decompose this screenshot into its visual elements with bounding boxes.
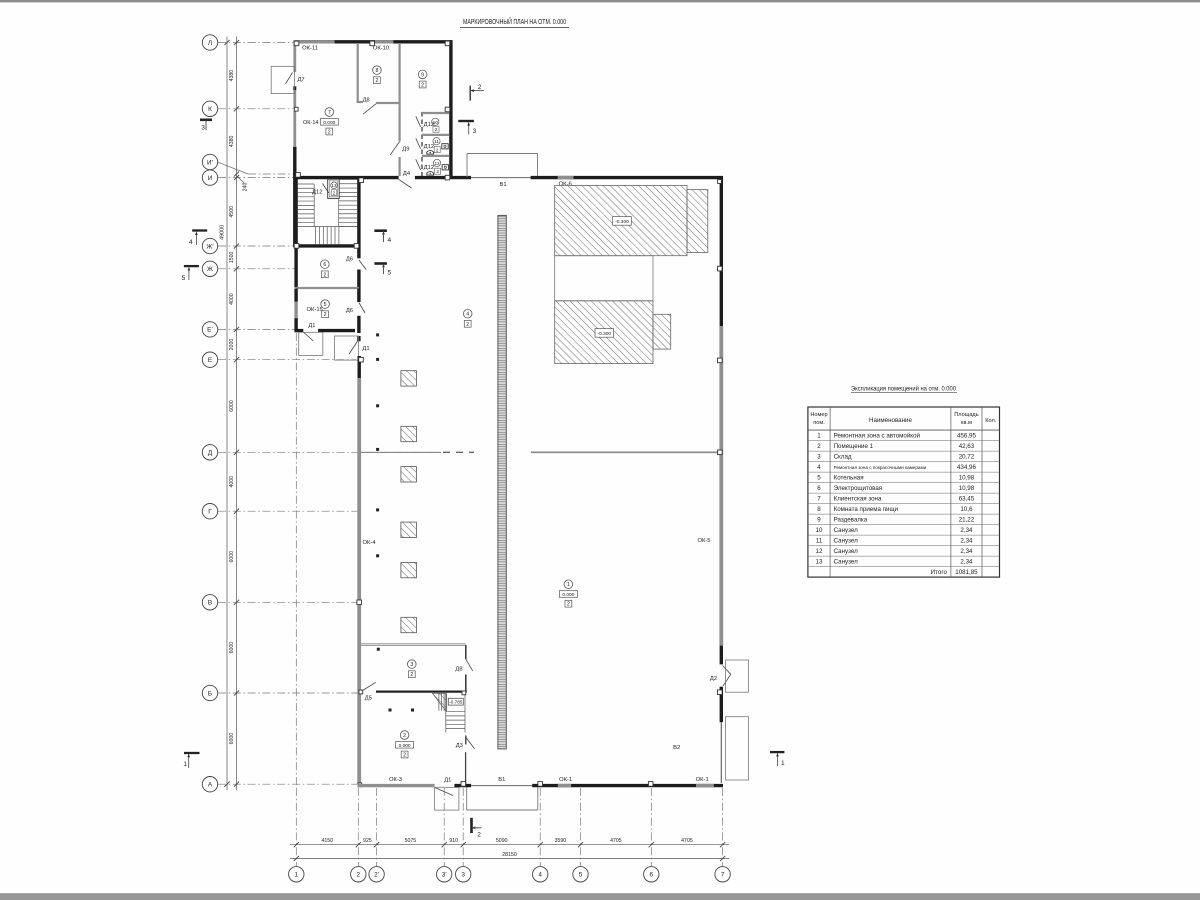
- svg-text:2: 2: [436, 147, 439, 152]
- svg-text:2: 2: [567, 602, 570, 608]
- svg-text:ОК-10: ОК-10: [373, 46, 389, 52]
- svg-text:4000: 4000: [229, 476, 235, 488]
- svg-text:7: 7: [817, 496, 821, 503]
- svg-text:21,22: 21,22: [959, 517, 975, 524]
- svg-text:4: 4: [466, 312, 469, 318]
- svg-text:2: 2: [357, 872, 361, 879]
- svg-text:5075: 5075: [405, 838, 417, 844]
- svg-text:6: 6: [817, 485, 821, 492]
- svg-text:4705: 4705: [610, 838, 622, 844]
- svg-text:-0.300: -0.300: [615, 219, 629, 225]
- svg-text:-0.785: -0.785: [449, 700, 462, 705]
- svg-text:0.000: 0.000: [323, 120, 335, 126]
- svg-text:2: 2: [328, 130, 331, 136]
- svg-text:В1: В1: [499, 182, 506, 188]
- svg-text:6000: 6000: [229, 642, 235, 654]
- svg-text:Д3: Д3: [456, 743, 463, 749]
- svg-text:42,63: 42,63: [959, 443, 975, 450]
- svg-text:49000: 49000: [220, 225, 226, 240]
- svg-text:7: 7: [721, 872, 725, 879]
- svg-text:ОК-1: ОК-1: [559, 777, 572, 783]
- svg-text:3: 3: [461, 872, 465, 879]
- svg-text:3: 3: [410, 662, 413, 668]
- svg-text:И: И: [208, 175, 213, 182]
- svg-text:2: 2: [410, 672, 413, 678]
- svg-text:2,34: 2,34: [960, 538, 973, 545]
- svg-text:13: 13: [816, 559, 823, 566]
- svg-text:кв.м: кв.м: [961, 420, 972, 426]
- svg-text:2,34: 2,34: [960, 548, 973, 555]
- svg-text:925: 925: [363, 838, 372, 844]
- svg-text:Д12: Д12: [312, 190, 323, 196]
- svg-text:2: 2: [435, 127, 438, 132]
- svg-text:9: 9: [817, 517, 821, 524]
- svg-text:3: 3: [817, 454, 821, 461]
- svg-text:4000: 4000: [229, 293, 235, 305]
- svg-text:10: 10: [433, 120, 439, 125]
- svg-text:Электрощитовая: Электрощитовая: [834, 485, 883, 492]
- svg-text:4: 4: [817, 464, 821, 471]
- svg-text:2’: 2’: [374, 872, 380, 879]
- svg-text:Наименование: Наименование: [869, 417, 912, 424]
- svg-text:Д8: Д8: [455, 667, 462, 673]
- svg-text:9: 9: [421, 72, 424, 78]
- svg-text:910: 910: [449, 838, 458, 844]
- svg-text:5: 5: [324, 302, 327, 308]
- svg-text:2: 2: [817, 443, 821, 450]
- svg-text:3’: 3’: [442, 872, 448, 879]
- svg-text:Котельная: Котельная: [834, 475, 864, 482]
- svg-text:МАРКИРОВОЧНЫЙ ПЛАН НА ОТМ. 0.0: МАРКИРОВОЧНЫЙ ПЛАН НА ОТМ. 0.000: [463, 17, 566, 26]
- svg-text:28150: 28150: [502, 852, 517, 858]
- svg-text:Клиентская зона: Клиентская зона: [834, 496, 882, 503]
- svg-text:6000: 6000: [229, 400, 235, 412]
- svg-text:ОК-15: ОК-15: [307, 307, 323, 313]
- svg-text:10,6: 10,6: [960, 506, 973, 513]
- svg-text:2,34: 2,34: [960, 527, 973, 534]
- svg-text:10: 10: [816, 527, 823, 534]
- svg-text:2000: 2000: [229, 339, 235, 351]
- svg-text:8: 8: [817, 506, 821, 513]
- svg-text:Д12: Д12: [424, 144, 435, 150]
- svg-text:Д6: Д6: [346, 308, 353, 314]
- svg-text:В: В: [208, 600, 212, 607]
- svg-text:Д4: Д4: [403, 171, 411, 177]
- svg-text:2: 2: [323, 272, 326, 278]
- svg-text:3: 3: [201, 125, 205, 132]
- svg-text:4500: 4500: [229, 206, 235, 218]
- svg-text:Ж’: Ж’: [206, 243, 214, 250]
- svg-text:2: 2: [478, 84, 482, 91]
- svg-text:2: 2: [324, 312, 327, 318]
- svg-text:Г: Г: [208, 509, 212, 516]
- svg-text:ОК-14: ОК-14: [303, 120, 318, 126]
- svg-text:1: 1: [567, 582, 570, 588]
- svg-text:5: 5: [182, 275, 186, 282]
- svg-text:11: 11: [816, 538, 823, 545]
- svg-text:Итого: Итого: [931, 569, 948, 576]
- svg-text:4705: 4705: [681, 838, 693, 844]
- svg-text:3: 3: [473, 128, 477, 135]
- svg-text:А: А: [208, 782, 213, 789]
- svg-text:1500: 1500: [229, 252, 235, 264]
- svg-text:И’: И’: [207, 159, 214, 166]
- svg-text:Д1: Д1: [362, 346, 369, 352]
- svg-text:4380: 4380: [229, 136, 235, 148]
- svg-text:12: 12: [816, 548, 823, 555]
- svg-text:ОК-3: ОК-3: [389, 777, 402, 783]
- svg-text:5: 5: [817, 475, 821, 482]
- svg-text:Д6: Д6: [346, 257, 353, 263]
- svg-text:6: 6: [650, 872, 654, 879]
- svg-text:Б: Б: [208, 690, 212, 697]
- svg-text:2: 2: [376, 78, 379, 84]
- svg-text:1: 1: [183, 761, 187, 768]
- svg-text:Л: Л: [208, 40, 212, 47]
- svg-text:2: 2: [403, 753, 406, 759]
- svg-text:Ремонтная зона с покрасочными: Ремонтная зона с покрасочными камерами: [834, 465, 927, 470]
- svg-text:2: 2: [403, 733, 406, 739]
- svg-text:1: 1: [781, 760, 785, 767]
- svg-text:12: 12: [434, 161, 440, 166]
- svg-text:Д: Д: [208, 450, 213, 457]
- svg-text:63,45: 63,45: [959, 496, 975, 503]
- svg-text:ОК-11: ОК-11: [302, 46, 318, 52]
- svg-text:1081,85: 1081,85: [955, 569, 978, 576]
- svg-text:5: 5: [579, 872, 583, 879]
- svg-text:Д9: Д9: [402, 147, 409, 153]
- svg-text:Д5: Д5: [365, 695, 372, 701]
- svg-text:ОК-5: ОК-5: [697, 538, 710, 544]
- svg-text:Экспликация помещений на отм.: Экспликация помещений на отм. 0.000: [851, 384, 956, 392]
- svg-text:6: 6: [323, 262, 326, 268]
- svg-text:К: К: [208, 106, 212, 113]
- svg-text:Санузел: Санузел: [834, 559, 858, 566]
- svg-text:Помещение 1: Помещение 1: [834, 443, 874, 450]
- svg-text:8: 8: [375, 68, 378, 74]
- svg-text:Склад: Склад: [834, 454, 852, 461]
- svg-text:0.000: 0.000: [562, 592, 574, 598]
- svg-text:3590: 3590: [555, 838, 567, 844]
- svg-text:11: 11: [434, 139, 439, 144]
- svg-text:Санузел: Санузел: [834, 538, 858, 545]
- svg-text:2: 2: [436, 169, 439, 174]
- svg-text:6000: 6000: [229, 551, 235, 563]
- svg-text:В1: В1: [498, 777, 505, 783]
- svg-text:Санузел: Санузел: [834, 527, 858, 534]
- svg-text:2: 2: [466, 322, 469, 328]
- svg-text:4: 4: [538, 872, 542, 879]
- svg-text:Номер: Номер: [810, 412, 827, 418]
- svg-text:5090: 5090: [496, 838, 508, 844]
- svg-text:2: 2: [477, 832, 481, 839]
- svg-text:Раздевалка: Раздевалка: [834, 517, 868, 524]
- svg-text:20,72: 20,72: [959, 454, 975, 461]
- svg-text:10,98: 10,98: [959, 475, 975, 482]
- svg-text:0.000: 0.000: [399, 743, 411, 749]
- svg-text:10,98: 10,98: [959, 485, 975, 492]
- svg-text:240: 240: [243, 183, 249, 192]
- svg-text:Д1: Д1: [444, 778, 451, 784]
- svg-text:В2: В2: [673, 745, 680, 751]
- svg-text:Площадь: Площадь: [954, 412, 978, 418]
- svg-text:-0.300: -0.300: [597, 331, 611, 337]
- svg-text:5: 5: [388, 270, 392, 277]
- svg-text:4380: 4380: [229, 70, 235, 82]
- svg-text:Кол.: Кол.: [985, 418, 997, 424]
- svg-text:ОК-1: ОК-1: [696, 777, 709, 783]
- svg-text:2,34: 2,34: [960, 559, 973, 566]
- svg-text:ОК-4: ОК-4: [363, 540, 377, 546]
- svg-text:4150: 4150: [322, 838, 334, 844]
- svg-text:1: 1: [817, 433, 821, 440]
- svg-text:Санузел: Санузел: [834, 548, 858, 555]
- svg-text:4: 4: [388, 237, 392, 244]
- svg-text:434,96: 434,96: [957, 464, 976, 471]
- svg-text:Д8: Д8: [363, 97, 370, 103]
- svg-text:2: 2: [421, 83, 424, 89]
- svg-text:4: 4: [189, 239, 193, 246]
- svg-text:1: 1: [295, 872, 299, 879]
- svg-text:6000: 6000: [229, 733, 235, 745]
- svg-text:13: 13: [332, 183, 337, 188]
- svg-text:Д7: Д7: [298, 77, 305, 83]
- svg-text:Ж: Ж: [207, 266, 213, 273]
- svg-text:Ремонтная зона с автомойкой: Ремонтная зона с автомойкой: [834, 433, 921, 440]
- svg-text:Комната приема пищи: Комната приема пищи: [834, 506, 899, 513]
- svg-text:Д12: Д12: [424, 165, 435, 171]
- svg-text:7: 7: [328, 110, 331, 116]
- svg-text:Е’: Е’: [207, 327, 213, 334]
- svg-text:456,95: 456,95: [957, 433, 976, 440]
- svg-text:пом.: пом.: [813, 420, 825, 426]
- svg-text:Д2: Д2: [710, 676, 717, 682]
- svg-text:Д1: Д1: [308, 323, 315, 329]
- svg-text:Е: Е: [208, 357, 212, 364]
